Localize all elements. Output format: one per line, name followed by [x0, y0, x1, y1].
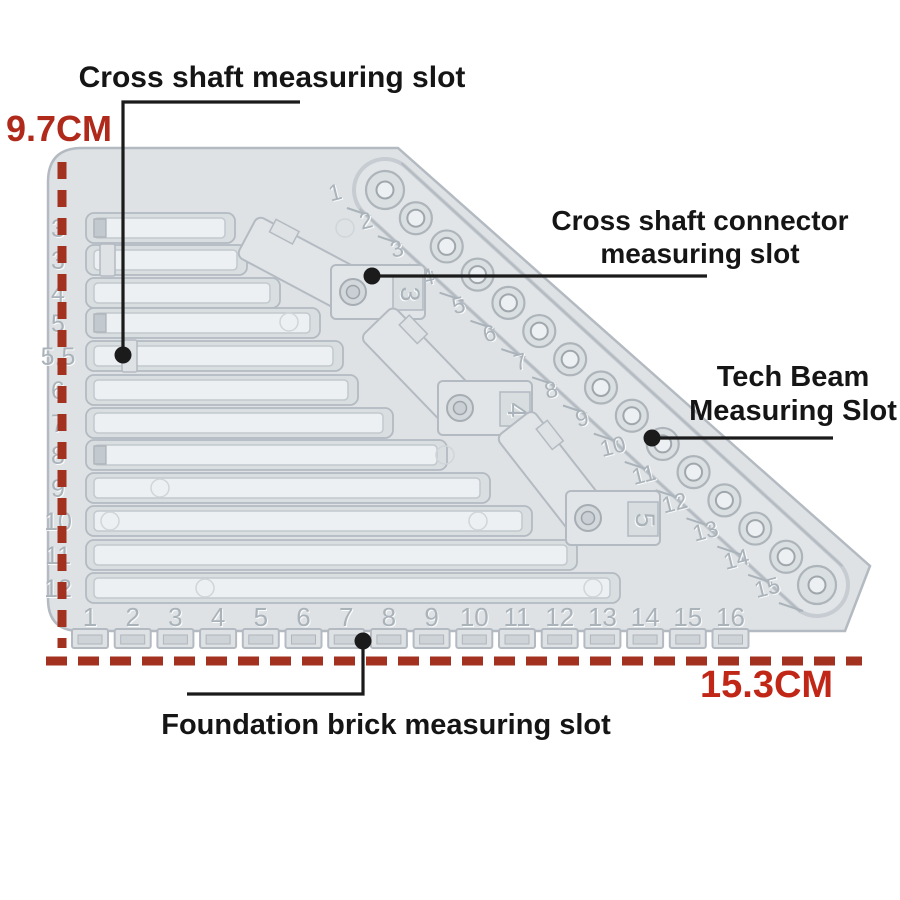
svg-text:14: 14 — [631, 602, 660, 632]
tech-beam-leader-dot — [644, 430, 661, 447]
product-diagram: 1234567891011121314151633455.56789101112… — [0, 0, 900, 900]
measuring-plate-graphic: 1234567891011121314151633455.56789101112… — [0, 0, 900, 900]
cross-shaft-leader-dot — [115, 347, 132, 364]
svg-text:4: 4 — [211, 602, 225, 632]
label-tech-beam-slot: Tech Beam Measuring Slot — [681, 360, 900, 428]
svg-text:8: 8 — [382, 602, 396, 632]
svg-text:3: 3 — [395, 286, 425, 301]
connector-leader-dot — [364, 268, 381, 285]
svg-text:2: 2 — [125, 602, 139, 632]
svg-text:9: 9 — [424, 602, 438, 632]
svg-text:1: 1 — [83, 602, 97, 632]
svg-text:7: 7 — [339, 602, 353, 632]
svg-text:10: 10 — [460, 602, 489, 632]
svg-text:5: 5 — [254, 602, 268, 632]
svg-text:12: 12 — [545, 602, 574, 632]
svg-text:11: 11 — [504, 602, 531, 632]
svg-text:5: 5 — [630, 512, 660, 527]
svg-text:15: 15 — [673, 602, 702, 632]
svg-text:3: 3 — [168, 602, 182, 632]
label-foundation-brick-slot: Foundation brick measuring slot — [161, 708, 611, 742]
svg-text:16: 16 — [716, 602, 745, 632]
svg-text:13: 13 — [588, 602, 617, 632]
label-cross-shaft-slot: Cross shaft measuring slot — [79, 60, 466, 95]
svg-text:6: 6 — [296, 602, 310, 632]
height-dimension-text: 9.7CM — [6, 108, 112, 150]
label-cross-shaft-connector-slot: Cross shaft connector measuring slot — [535, 204, 865, 270]
foundation-leader-dot — [355, 633, 372, 650]
width-dimension-text: 15.3CM — [700, 664, 833, 707]
